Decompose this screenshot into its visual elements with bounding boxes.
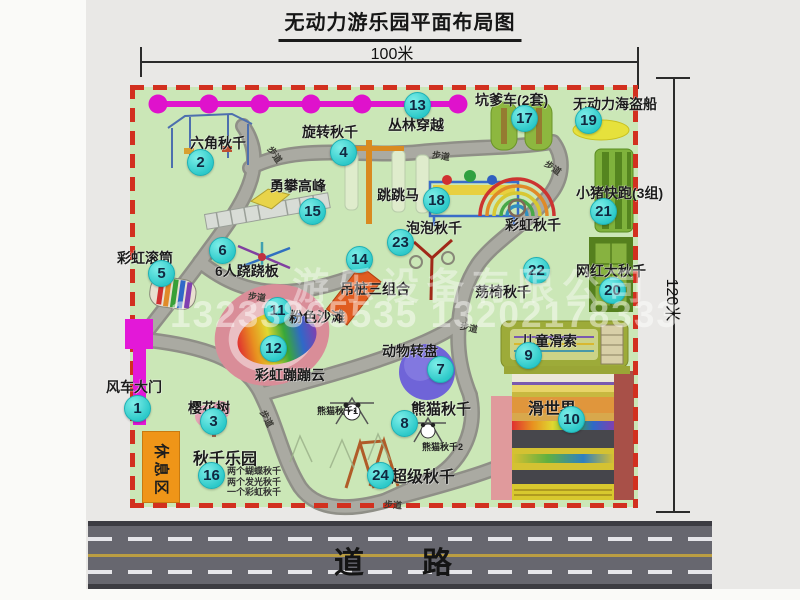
park-layout-map: 休息区 无动力游乐园平面布局图 100米 120米 道 路 风车大门1六角秋千2…	[0, 0, 800, 600]
attraction-label-14: 吊桩三组合	[340, 279, 410, 299]
attraction-number-10: 10	[558, 406, 585, 433]
attraction-markers: 风车大门1六角秋千2樱花树3旋转秋千4彩虹滚筒56人跷跷板6动物转盘7熊猫秋千8…	[0, 0, 800, 600]
attraction-label-4: 旋转秋千	[302, 122, 358, 142]
attraction-label-11: 粉色沙滩	[289, 307, 345, 327]
swing-park-detail: 一个彩虹秋千	[227, 485, 281, 498]
attraction-label-18: 跳跳马	[377, 185, 419, 205]
attraction-number-8: 8	[391, 410, 418, 437]
walkway-label: 步道	[431, 148, 451, 163]
attraction-number-12: 12	[260, 335, 287, 362]
attraction-label-21: 小猪快跑(3组)	[576, 183, 663, 203]
attraction-number-22: 22	[523, 257, 550, 284]
attraction-label-17: 坑爹车(2套)	[475, 90, 548, 110]
walkway-label: 步道	[265, 143, 286, 165]
attraction-number-2: 2	[187, 149, 214, 176]
attraction-number-13: 13	[404, 92, 431, 119]
attraction-label-7: 动物转盘	[382, 341, 438, 361]
walkway-label: 步道	[384, 497, 403, 511]
attraction-number-6: 6	[209, 237, 236, 264]
attraction-number-18: 18	[423, 187, 450, 214]
attraction-number-1: 1	[124, 395, 151, 422]
attraction-number-7: 7	[427, 356, 454, 383]
attraction-number-11: 11	[264, 297, 291, 324]
attraction-number-19: 19	[575, 107, 602, 134]
attraction-number-4: 4	[330, 139, 357, 166]
attraction-number-24: 24	[367, 462, 394, 489]
attraction-number-9: 9	[515, 342, 542, 369]
attraction-label-8: 熊猫秋千	[411, 398, 471, 419]
extra-label: 熊猫秋千2	[422, 440, 463, 453]
attraction-number-23: 23	[387, 229, 414, 256]
attraction-label-12: 彩虹蹦蹦云	[255, 365, 325, 385]
attraction-label-1: 风车大门	[106, 377, 162, 397]
attraction-number-17: 17	[511, 105, 538, 132]
attraction-number-20: 20	[599, 277, 626, 304]
attraction-label-24: 超级秋千	[391, 463, 455, 487]
walkway-label: 步道	[459, 319, 479, 335]
walkway-label: 步道	[257, 407, 277, 429]
walkway-label: 步道	[247, 289, 267, 304]
extra-label: 彩虹秋千	[505, 215, 561, 235]
attraction-label-6: 6人跷跷板	[215, 261, 279, 281]
attraction-label-22: 荡椅秋千	[475, 282, 531, 302]
attraction-number-3: 3	[200, 408, 227, 435]
extra-label: 熊猫秋千1	[317, 404, 358, 417]
attraction-number-15: 15	[299, 198, 326, 225]
attraction-label-23: 泡泡秋千	[406, 218, 462, 238]
walkway-label: 步道	[542, 157, 564, 178]
attraction-label-15: 勇攀高峰	[270, 176, 326, 196]
attraction-number-14: 14	[346, 246, 373, 273]
attraction-number-5: 5	[148, 260, 175, 287]
attraction-number-21: 21	[590, 198, 617, 225]
attraction-number-16: 16	[198, 462, 225, 489]
